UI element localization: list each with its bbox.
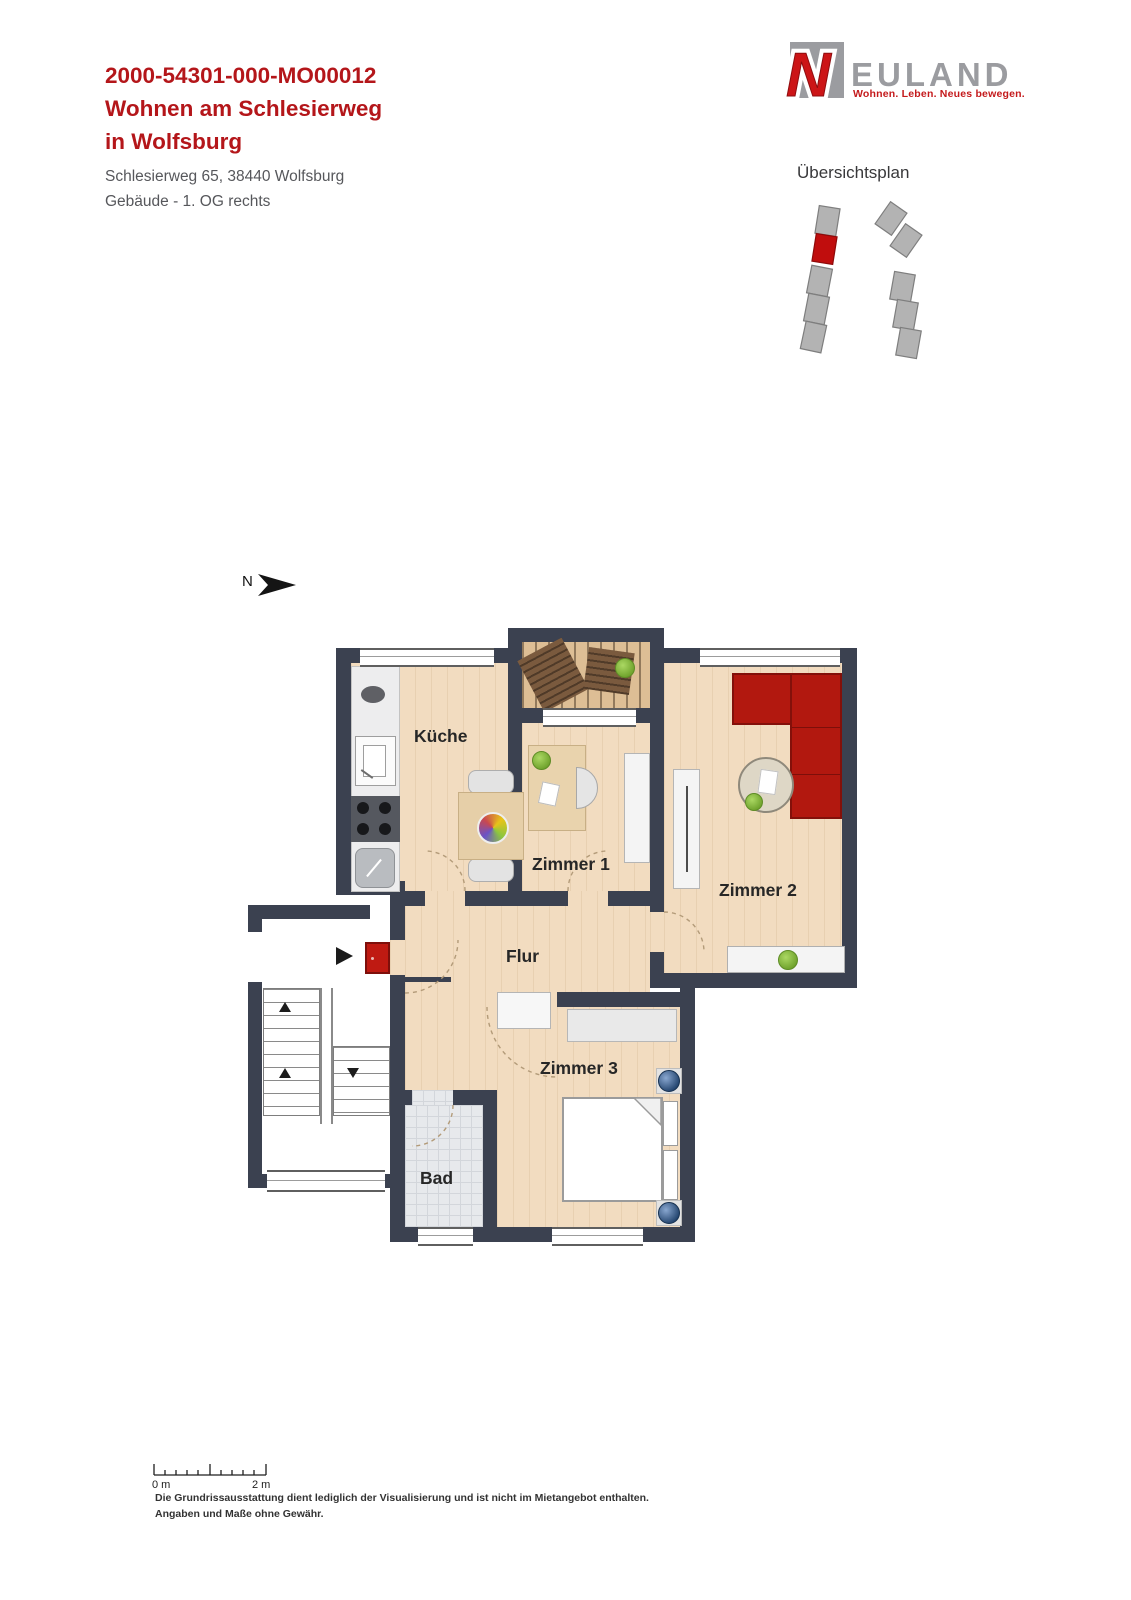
stairwell-window (267, 1170, 385, 1192)
plant-icon (532, 751, 551, 770)
zimmer2-window (700, 648, 840, 667)
wall-stub (405, 977, 451, 982)
expose-page: 2000-54301-000-MO00012 Wohnen am Schlesi… (0, 0, 1131, 1600)
wall (483, 1090, 497, 1242)
wardrobe (567, 1009, 677, 1042)
wall (508, 628, 664, 642)
bad-window (418, 1227, 473, 1246)
north-arrow-icon (258, 574, 296, 596)
site-block (800, 321, 826, 353)
nightstand (663, 1150, 678, 1200)
floor-plan: N (232, 540, 892, 1260)
sofa-seam (792, 774, 840, 775)
book-icon (757, 769, 778, 795)
nightstand (663, 1101, 678, 1146)
wardrobe (624, 753, 650, 863)
wall (248, 982, 262, 1188)
wall (650, 713, 664, 906)
wall (557, 992, 680, 1007)
wall (385, 1174, 405, 1188)
balcony-door-window (543, 708, 636, 727)
wall (248, 905, 370, 919)
knife (366, 859, 382, 877)
room-label-zimmer1: Zimmer 1 (532, 854, 610, 875)
plant-icon (778, 950, 798, 970)
north-label: N (242, 573, 253, 590)
address-line: Schlesierweg 65, 38440 Wolfsburg (105, 168, 344, 186)
fruit-bowl-icon (477, 812, 509, 844)
wall (390, 895, 405, 940)
blue-bowl-icon (658, 1202, 680, 1224)
room-label-zimmer3: Zimmer 3 (540, 1058, 618, 1079)
wardrobe (673, 769, 700, 889)
door-knob (371, 957, 374, 960)
wall (650, 906, 664, 912)
site-block (804, 293, 830, 324)
disclaimer-line1: Die Grundrissausstattung dient lediglich… (155, 1492, 649, 1504)
stove-icon (351, 796, 400, 842)
stairs-flight-up (263, 988, 320, 1116)
stairs-down-arrow-icon (347, 1068, 359, 1078)
burner (357, 802, 369, 814)
burner (357, 823, 369, 835)
object-code: 2000-54301-000-MO00012 (105, 63, 376, 89)
entry-door (365, 942, 390, 974)
page-title-line2: in Wolfsburg (105, 129, 242, 155)
entry-arrow-icon (336, 947, 353, 965)
stairs-up-arrow-icon (279, 1068, 291, 1078)
wall (248, 919, 262, 932)
site-block-highlighted (812, 234, 837, 265)
wall (390, 1227, 418, 1242)
bad-floor (405, 1105, 483, 1227)
wall (650, 628, 664, 708)
wall (405, 1090, 412, 1105)
site-plan (785, 195, 945, 370)
kueche-window (360, 648, 494, 667)
sink-icon (355, 736, 396, 786)
chair (468, 858, 514, 882)
burner (379, 802, 391, 814)
wall (650, 952, 664, 988)
burner (379, 823, 391, 835)
kettle-icon (361, 686, 385, 703)
plant-icon (615, 658, 635, 678)
room-label-flur: Flur (506, 946, 539, 967)
scale-start-label: 0 m (152, 1479, 170, 1491)
site-block (890, 271, 916, 302)
sofa-chaise (790, 673, 842, 819)
wall (842, 648, 857, 988)
zimmer2-door-opening-floor (650, 912, 664, 952)
wall (336, 648, 351, 895)
chair (468, 770, 514, 794)
disclaimer-line2: Angaben und Maße ohne Gewähr. (155, 1508, 324, 1520)
site-block (807, 265, 833, 296)
blue-bowl-icon (658, 1070, 680, 1092)
wardrobe-handle (686, 786, 688, 872)
stairs-up-arrow-icon (279, 1002, 291, 1012)
wall (248, 1174, 267, 1188)
logo-tagline: Wohnen. Leben. Neues bewegen. (853, 88, 1025, 100)
site-block (815, 206, 840, 237)
page-title-line1: Wohnen am Schlesierweg (105, 96, 382, 122)
cutting-board-icon (355, 848, 395, 888)
scale-ruler-icon (152, 1460, 272, 1478)
site-block (893, 299, 919, 330)
wall (405, 891, 425, 906)
unit-info-line: Gebäude - 1. OG rechts (105, 193, 270, 211)
wall (465, 891, 508, 906)
scale-end-label: 2 m (252, 1479, 270, 1491)
bad-door-opening-floor (412, 1090, 453, 1105)
entry-opening-floor (390, 940, 405, 975)
room-label-kueche: Küche (414, 726, 467, 747)
sofa-seam (792, 727, 840, 728)
site-block (896, 327, 922, 358)
wall (643, 1227, 695, 1242)
hall-shelf (497, 992, 551, 1029)
stairs-flight-down (333, 1046, 390, 1116)
overview-plan-title: Übersichtsplan (797, 163, 909, 183)
plant-icon (745, 793, 763, 811)
stair-railing (320, 988, 333, 1124)
svg-text:N: N (786, 41, 832, 110)
room-label-bad: Bad (420, 1168, 453, 1189)
zimmer3-window (552, 1227, 643, 1246)
wall (680, 973, 695, 1242)
wall (522, 891, 568, 906)
room-label-zimmer2: Zimmer 2 (719, 880, 797, 901)
wall (390, 975, 405, 1242)
bed (562, 1097, 663, 1202)
